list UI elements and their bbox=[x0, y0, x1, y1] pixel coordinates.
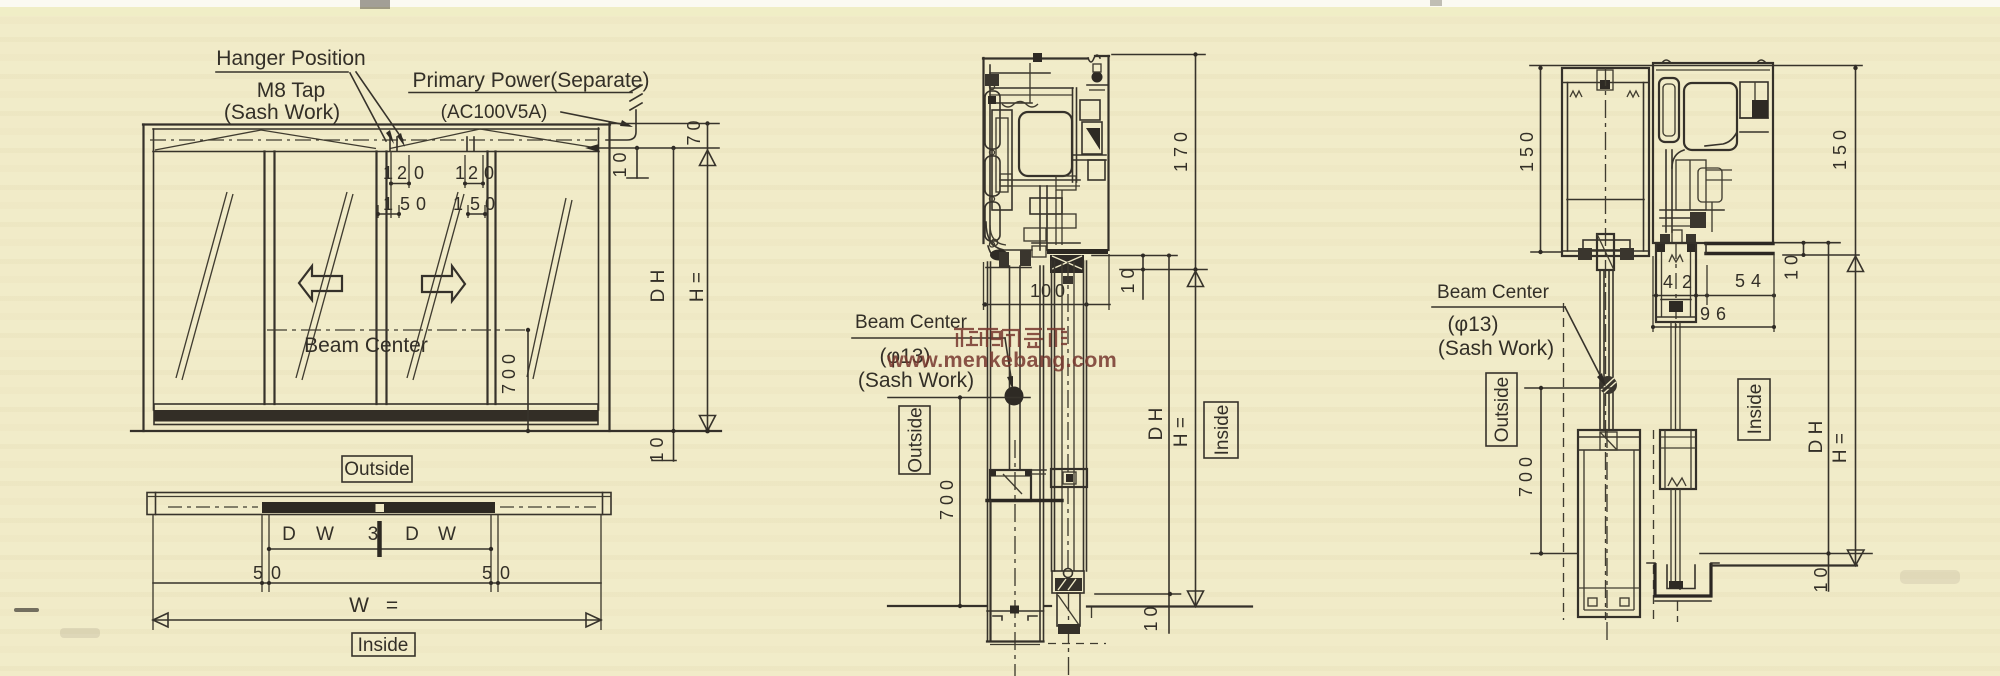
svg-text:(Sash Work): (Sash Work) bbox=[1438, 337, 1554, 360]
svg-text:1 0: 1 0 bbox=[1782, 255, 1802, 280]
svg-text:D H: D H bbox=[1806, 421, 1827, 454]
svg-text:www.menkebang.com: www.menkebang.com bbox=[886, 348, 1117, 372]
svg-text:4: 4 bbox=[1751, 271, 1761, 291]
svg-text:W: W bbox=[349, 594, 369, 617]
svg-text:D H: D H bbox=[648, 270, 669, 303]
svg-text:2: 2 bbox=[397, 163, 407, 183]
svg-text:2: 2 bbox=[468, 163, 478, 183]
svg-text:7 0: 7 0 bbox=[684, 120, 704, 145]
svg-text:0: 0 bbox=[500, 563, 510, 583]
svg-text:0: 0 bbox=[484, 163, 494, 183]
svg-text:H =: H = bbox=[1171, 417, 1192, 447]
svg-text:1 5 0: 1 5 0 bbox=[1830, 130, 1850, 170]
svg-text:5: 5 bbox=[1735, 271, 1745, 291]
svg-text:6: 6 bbox=[1716, 304, 1726, 324]
svg-text:7 0 0: 7 0 0 bbox=[499, 354, 519, 394]
svg-text:5: 5 bbox=[400, 194, 410, 214]
svg-text:5: 5 bbox=[482, 563, 492, 583]
svg-text:Primary Power(Separate): Primary Power(Separate) bbox=[413, 69, 650, 92]
svg-text:(φ13): (φ13) bbox=[1448, 313, 1499, 336]
svg-text:3: 3 bbox=[368, 524, 379, 545]
svg-text:Inside: Inside bbox=[358, 635, 409, 656]
svg-text:Beam Center: Beam Center bbox=[855, 312, 968, 333]
svg-text:D H: D H bbox=[1146, 408, 1167, 441]
svg-text:H =: H = bbox=[687, 272, 708, 302]
svg-text:5: 5 bbox=[470, 194, 480, 214]
svg-text:Inside: Inside bbox=[1745, 384, 1766, 435]
svg-text:2: 2 bbox=[1682, 272, 1692, 292]
svg-text:Outside: Outside bbox=[344, 459, 409, 480]
svg-text:0: 0 bbox=[416, 194, 426, 214]
svg-text:1: 1 bbox=[453, 194, 463, 214]
svg-text:7 0 0: 7 0 0 bbox=[937, 480, 957, 520]
svg-text:H =: H = bbox=[1830, 433, 1851, 463]
svg-text:1 5 0: 1 5 0 bbox=[1517, 132, 1537, 172]
svg-text:1 0: 1 0 bbox=[1141, 606, 1161, 631]
svg-text:7 0 0: 7 0 0 bbox=[1516, 457, 1536, 497]
svg-text:Outside: Outside bbox=[906, 407, 927, 472]
svg-text:W: W bbox=[438, 524, 456, 545]
svg-text:Beam Center: Beam Center bbox=[1437, 282, 1550, 303]
svg-text:1: 1 bbox=[1030, 281, 1040, 301]
svg-text:Outside: Outside bbox=[1492, 377, 1513, 442]
svg-text:W: W bbox=[316, 524, 334, 545]
svg-text:9: 9 bbox=[1700, 304, 1710, 324]
svg-text:(Sash Work): (Sash Work) bbox=[224, 101, 340, 124]
svg-text:=: = bbox=[386, 594, 398, 617]
svg-text:0: 0 bbox=[1055, 281, 1065, 301]
svg-text:1 0: 1 0 bbox=[1811, 567, 1831, 592]
svg-text:0: 0 bbox=[271, 563, 281, 583]
svg-text:(Sash Work): (Sash Work) bbox=[858, 369, 974, 392]
svg-text:D: D bbox=[405, 524, 419, 545]
svg-text:(AC100V5A): (AC100V5A) bbox=[441, 102, 548, 123]
svg-text:4: 4 bbox=[1663, 272, 1673, 292]
svg-text:M8 Tap: M8 Tap bbox=[257, 79, 326, 102]
svg-text:5: 5 bbox=[253, 563, 263, 583]
svg-text:Beam Center: Beam Center bbox=[304, 334, 428, 357]
svg-text:1 0: 1 0 bbox=[610, 152, 630, 177]
svg-text:D: D bbox=[282, 524, 296, 545]
svg-text:1 0: 1 0 bbox=[647, 437, 667, 462]
svg-text:Inside: Inside bbox=[1212, 405, 1233, 456]
svg-text:1: 1 bbox=[455, 163, 465, 183]
svg-text:Hanger Position: Hanger Position bbox=[216, 47, 365, 70]
svg-text:1 0: 1 0 bbox=[1118, 268, 1138, 293]
svg-text:0: 0 bbox=[485, 194, 495, 214]
svg-text:0: 0 bbox=[1041, 281, 1051, 301]
svg-text:1 7 0: 1 7 0 bbox=[1171, 132, 1191, 172]
svg-text:0: 0 bbox=[414, 163, 424, 183]
